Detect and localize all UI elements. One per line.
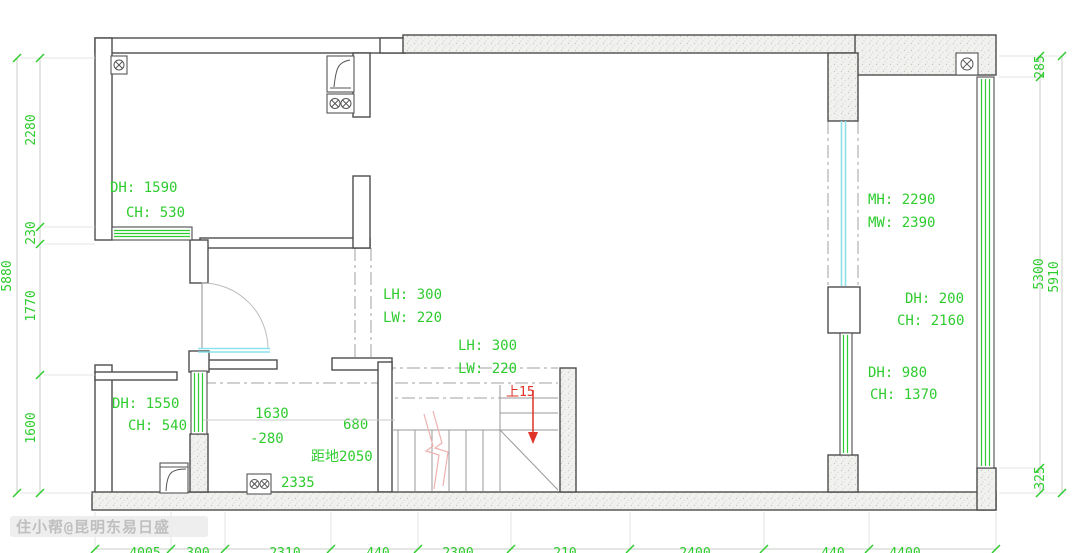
centerlines: [203, 121, 858, 398]
wall-left-upper: [95, 38, 112, 240]
dim-bottom-0: 4005: [129, 546, 160, 553]
walls-hatched: [92, 35, 996, 510]
entry-door: [198, 283, 270, 352]
wall-bottomleft-top: [95, 372, 177, 380]
dim-bottom-7: 440: [821, 546, 844, 553]
windows: [112, 77, 994, 468]
wall-kitchen-right-lower: [353, 176, 370, 248]
label-flue-upper-1: LH: 300: [383, 287, 442, 303]
room-annotations: DH: 1590 CH: 530 LH: 300 LW: 220 LH: 300…: [110, 180, 964, 491]
wall-stair-left: [378, 362, 392, 492]
label-right-opening-2: MW: 2390: [868, 215, 935, 231]
dim-bottom-2: 2310: [269, 546, 300, 553]
label-right-opening-1: MH: 2290: [868, 192, 935, 208]
window-right-outer: [977, 77, 994, 468]
dim-230: 230: [24, 221, 39, 244]
wall-kitchen-right-upper: [353, 53, 370, 117]
label-door-bl-1: DH: 1550: [112, 396, 179, 412]
label-height-note: 距地2050: [311, 449, 373, 465]
wall-right-block: [828, 287, 860, 333]
walls-solid: [95, 38, 860, 493]
dim-2280: 2280: [24, 114, 39, 145]
label-door-bl-2: CH: 540: [128, 418, 187, 434]
dim-5910: 5910: [1047, 261, 1062, 292]
column-right-mid: [828, 455, 858, 492]
label-flue-upper-2: LW: 220: [383, 310, 442, 326]
dim-left-total: 5880: [0, 260, 15, 291]
wall-top-column: [380, 38, 405, 53]
watermark-text: 住小帮@昆明东易日盛: [16, 518, 170, 536]
water-heater-icon: [160, 463, 188, 493]
dimension-left: 5880 2280 230 1770 1600: [0, 54, 95, 497]
wall-bottomleft-left: [95, 365, 112, 493]
wall-hall-bottom-left: [200, 360, 277, 369]
label-right-door-low-1: DH: 980: [868, 365, 927, 381]
break-line: [433, 411, 448, 486]
kitchen-counter-icon: [327, 56, 354, 92]
dim-285: 285: [1033, 55, 1048, 78]
window-top-left: [112, 227, 192, 240]
dim-bottom-5: 210: [553, 546, 576, 553]
window-bottom-left: [191, 371, 207, 434]
dim-5300: 5300: [1032, 258, 1047, 289]
stair-diagonal: [500, 430, 558, 490]
label-right-door-low-2: CH: 1370: [870, 387, 937, 403]
dimension-right: 285 5300 5910 325: [999, 52, 1066, 497]
label-door-tl-1: DH: 1590: [110, 180, 177, 196]
column-stairwell: [560, 368, 576, 492]
stair-up-label: 上15: [506, 385, 535, 400]
dim-1770: 1770: [24, 290, 39, 321]
label-680: 680: [343, 417, 368, 433]
gas-stove-icon: [327, 94, 354, 113]
staircase: 上15: [392, 385, 558, 491]
dim-bottom-6: 2400: [679, 546, 710, 553]
column-entry: [190, 434, 208, 492]
dimension-bottom: 4005 300 2310 440 2300 210 2400 440 4400: [91, 512, 1000, 553]
window-right-room-left: [840, 333, 852, 455]
column-right-bottom-corner: [977, 468, 996, 510]
dim-bottom-3: 440: [366, 546, 389, 553]
wall-top-left: [95, 38, 405, 53]
label-flue-lower-1: LH: 300: [458, 338, 517, 354]
wall-divider: [200, 238, 370, 248]
dim-bottom-1: 300: [186, 546, 209, 553]
door-swing-arc: [202, 283, 268, 349]
gas-stove-icon: [247, 474, 271, 494]
label-door-tl-2: CH: 530: [126, 205, 185, 221]
label-2335: 2335: [281, 475, 315, 491]
column-right-top: [828, 53, 858, 121]
wall-entry-jamb: [190, 240, 208, 283]
dim-325: 325: [1033, 466, 1048, 489]
label-right-door-up-2: CH: 2160: [897, 313, 964, 329]
ceiling-lamp-icon: [111, 56, 127, 74]
wall-top-mid-hatch: [403, 35, 857, 53]
wall-entry-step: [189, 351, 209, 372]
label-flue-lower-2: LW: 220: [458, 361, 517, 377]
ceiling-lamp-icon: [956, 53, 978, 75]
floor-plan-canvas: 上15: [0, 0, 1080, 553]
watermark: 住小帮@昆明东易日盛: [10, 516, 208, 537]
wall-bottom-band: [92, 492, 996, 510]
dim-bottom-8: 4400: [889, 546, 920, 553]
label-right-door-up-1: DH: 200: [905, 291, 964, 307]
dim-bottom-4: 2300: [442, 546, 473, 553]
label-minus280: -280: [250, 431, 284, 447]
new-window-cyan: [842, 121, 846, 286]
floor-plan-page: 上15: [0, 0, 1080, 553]
dim-1600: 1600: [24, 412, 39, 443]
